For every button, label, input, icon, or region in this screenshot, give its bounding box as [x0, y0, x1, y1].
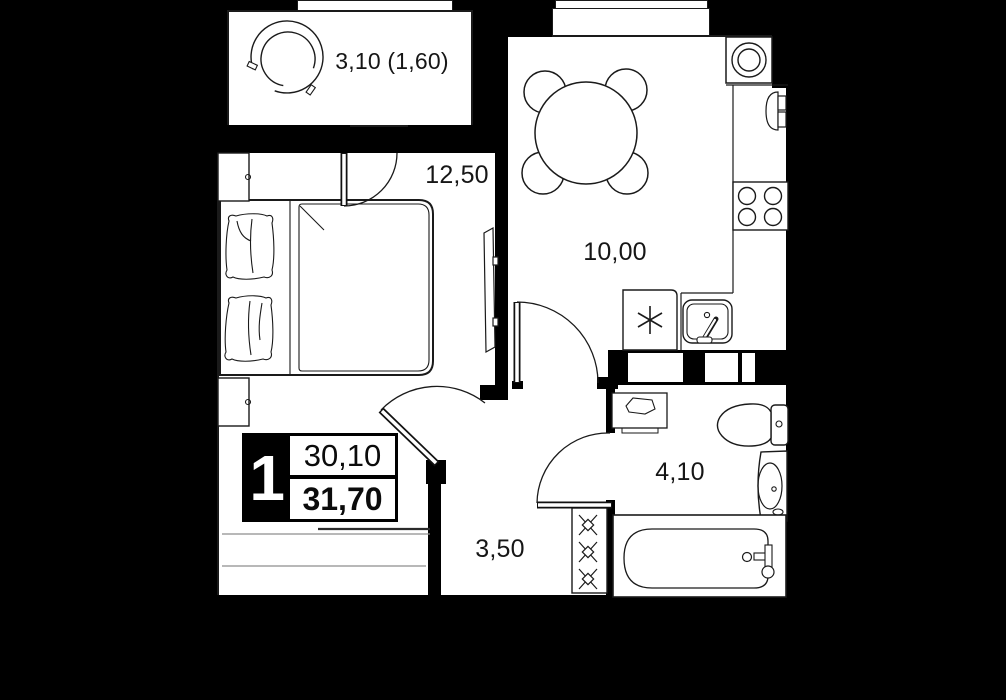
kitchen-area-label: 10,00 — [576, 238, 654, 267]
bedroom-area-label: 12,50 — [419, 161, 495, 190]
dining-table-icon — [535, 82, 637, 184]
toilet-icon — [717, 404, 788, 446]
washbasin-icon — [758, 451, 787, 521]
bathroom-area-label: 4,10 — [644, 458, 716, 487]
rooms-count-badge: 1 — [242, 433, 287, 522]
kitchen-sink-icon — [683, 300, 732, 343]
balcony-area-label: 3,10 (1,60) — [330, 48, 454, 75]
stove-icon — [733, 182, 788, 230]
dishwasher-icon — [623, 290, 677, 350]
kitchen-door — [517, 302, 598, 383]
wardrobe-icon — [222, 529, 430, 566]
bathroom-door — [537, 433, 612, 505]
floor-plan: 3,10 (1,60) 12,50 10,00 3,50 4,10 1 30,1… — [0, 0, 1006, 700]
bathroom-cabinet-icon — [612, 393, 667, 433]
fridge-icon — [766, 92, 786, 130]
area-value-lower: 31,70 — [287, 476, 398, 522]
armchair-icon — [247, 21, 323, 95]
towel-dryer-icon — [572, 508, 607, 593]
tv-icon — [484, 228, 498, 352]
bathtub-icon — [613, 515, 786, 597]
hallway-area-label: 3,50 — [464, 535, 536, 564]
washing-machine-icon — [726, 37, 772, 83]
balcony-door — [344, 153, 397, 206]
area-value-upper: 30,10 — [287, 433, 398, 478]
plan-linework — [0, 0, 1006, 700]
